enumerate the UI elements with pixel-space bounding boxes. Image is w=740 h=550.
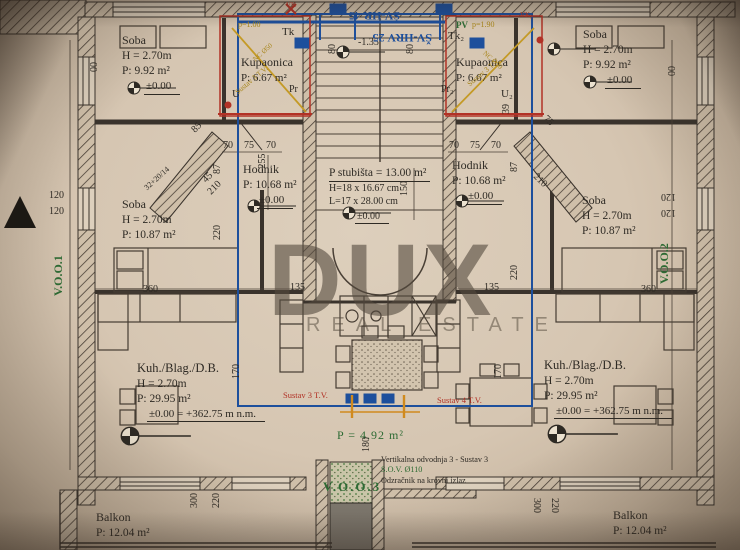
plan-annotation: 70	[266, 141, 276, 151]
room-name: Kuh./Blag./D.B.	[137, 360, 265, 377]
room-label-soba-top-right: Soba H = 2.70m P: 9.92 m² ±0.00	[583, 27, 641, 89]
plan-annotation: 87	[213, 164, 223, 174]
staircase-label: P stubišta = 13.00 m² H=18 x 16.67 cm L=…	[329, 166, 430, 224]
room-area: P: 10.68 m²	[452, 174, 506, 189]
room-area: P: 29.95 m²	[137, 392, 265, 407]
room-name: Soba	[583, 27, 641, 43]
plan-annotation: 220	[213, 225, 223, 240]
room-area: P: 12.04 m²	[96, 526, 150, 541]
room-label-hodnik-left: Hodnik P: 10.68 m² ±0.00	[243, 162, 297, 209]
plan-annotation: 87	[510, 162, 520, 172]
room-level: ±0.00 = +362.75 m n.m.	[554, 404, 672, 420]
room-area: P: 29.95 m²	[544, 389, 672, 404]
staircase-riser: H=18 x 16.67 cm	[329, 182, 430, 195]
plan-annotation: 39	[502, 104, 512, 114]
room-area: P: 9.92 m²	[122, 64, 180, 79]
room-name: Soba	[122, 197, 176, 213]
plan-annotation: 220	[212, 493, 222, 508]
plan-annotation: 120	[49, 207, 64, 217]
shaft-note-3: Odzračnik na krovni izlaz	[381, 476, 488, 486]
room-label-kuh-left: Kuh./Blag./D.B. H = 2.70m P: 29.95 m² ±0…	[137, 360, 265, 422]
plan-annotation: 00	[668, 66, 678, 76]
edge-triangle-marker	[4, 196, 36, 228]
plan-annotation: 70	[449, 141, 459, 151]
plan-annotation: 170	[232, 364, 242, 379]
room-name: Balkon	[96, 510, 150, 526]
room-area: P: 10.87 m²	[582, 224, 636, 239]
room-name: Hodnik	[243, 162, 297, 178]
plan-annotation: 120	[661, 207, 676, 217]
plan-annotation: Pr₂	[441, 85, 453, 95]
plan-annotation: 70	[223, 141, 233, 151]
plan-annotation: ŠV-HR 45	[349, 10, 400, 22]
plan-annotation: ŠV-HRV 25	[373, 32, 432, 44]
plan-annotation: Sustav 3 T.V.	[283, 391, 328, 400]
room-name: Soba	[582, 193, 636, 209]
room-height: H = 2.70m	[122, 213, 176, 228]
floor-plan-scan: Soba H = 2.70m P: 9.92 m² ±0.00 Soba H =…	[0, 0, 740, 550]
room-label-kuh-right: Kuh./Blag./D.B. H = 2.70m P: 29.95 m² ±0…	[544, 357, 672, 419]
room-name: Kuh./Blag./D.B.	[544, 357, 672, 374]
room-label-balkon-left: Balkon P: 12.04 m²	[96, 510, 150, 541]
plan-annotation: VK	[286, 2, 296, 9]
plan-annotation: 75	[244, 141, 254, 151]
plan-annotation: 120	[661, 191, 676, 201]
room-height: H = 2.70m	[544, 374, 672, 389]
plan-annotation: 360	[641, 285, 656, 295]
plan-annotation: 00	[90, 62, 100, 72]
room-label-hodnik-right: Hodnik P: 10.68 m² ±0.00	[452, 158, 506, 205]
plan-annotation: PV	[456, 21, 468, 30]
plan-annotation: VK₂	[520, 12, 533, 19]
plan-annotation: 80	[406, 44, 416, 54]
shaft	[330, 462, 372, 550]
shaft-note-1: Vertikalna odvodnja 3 - Sustav 3	[381, 455, 488, 465]
shaft-note-2: S.O.V. Ø110	[381, 465, 488, 475]
room-name: Hodnik	[452, 158, 506, 174]
plan-annotation: U₂	[501, 89, 513, 100]
plan-annotation: -255	[258, 154, 268, 172]
plan-annotation: 135	[484, 283, 499, 293]
room-label-balkon-right: Balkon P: 12.04 m²	[613, 508, 667, 539]
room-level: ±0.00	[605, 73, 641, 89]
plan-annotation: 150	[400, 181, 410, 196]
staircase-level: ±0.00	[355, 210, 389, 224]
plan-annotation: 300	[531, 498, 541, 513]
plan-annotation: 120	[49, 191, 64, 201]
room-area: P: 10.68 m²	[243, 178, 297, 193]
plan-annotation: 220	[549, 498, 559, 513]
room-area: P: 12.04 m²	[613, 524, 667, 539]
plan-annotation: 300	[190, 493, 200, 508]
room-area: P: 10.87 m²	[122, 228, 176, 243]
room-name: Soba	[122, 33, 180, 49]
room-level: ±0.00 = +362.75 m n.m.	[147, 407, 265, 423]
room-level: ±0.00	[144, 79, 180, 95]
plan-annotation: 75	[470, 141, 480, 151]
room-area: P: 9.92 m²	[583, 58, 641, 73]
room-name: Balkon	[613, 508, 667, 524]
plan-annotation: Tk	[282, 27, 294, 38]
plan-annotation: 170	[494, 364, 504, 379]
plan-annotation: 360	[143, 285, 158, 295]
plan-annotation: 180	[362, 437, 372, 452]
plan-annotation: V.O.O.2	[658, 243, 670, 284]
shaft-notes: Vertikalna odvodnja 3 - Sustav 3 S.O.V. …	[381, 455, 488, 486]
plan-annotation: 135	[290, 283, 305, 293]
room-level: ±0.00	[257, 193, 293, 209]
plan-annotation: V.O.O.1	[52, 255, 64, 296]
plan-annotation: 220	[510, 265, 520, 280]
shaft-code-label: V.O.O.3	[323, 479, 381, 495]
plan-annotation: p=1.90	[472, 21, 495, 29]
plan-annotation: Pr	[289, 85, 298, 95]
room-height: H = 2.70m	[582, 209, 636, 224]
plan-annotation: Sustav 4 T.V.	[437, 396, 482, 405]
room-label-soba-mid-left: Soba H = 2.70m P: 10.87 m²	[122, 197, 176, 243]
room-height: H = 2.70m	[122, 49, 180, 64]
plan-annotation: 80	[328, 44, 338, 54]
plan-annotation: Tk₂	[448, 31, 464, 42]
staircase-area: P stubišta = 13.00 m²	[329, 166, 430, 182]
room-height: H = 2.70m	[583, 43, 641, 58]
staircase-tread: L=17 x 28.00 cm	[329, 195, 430, 208]
staircase	[316, 18, 443, 295]
room-label-soba-top-left: Soba H = 2.70m P: 9.92 m² ±0.00	[122, 33, 180, 95]
room-label-soba-mid-right: Soba H = 2.70m P: 10.87 m²	[582, 193, 636, 239]
room-level: ±0.00	[466, 189, 502, 205]
plan-annotation: p=1.00	[238, 21, 261, 29]
room-height: H = 2.70m	[137, 377, 265, 392]
plan-annotation: 70	[491, 141, 501, 151]
